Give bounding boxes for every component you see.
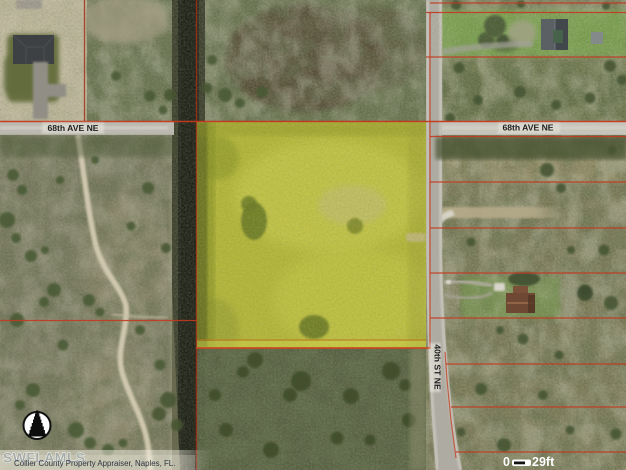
svg-text:40th ST NE: 40th ST NE	[433, 344, 443, 390]
svg-text:Collier County Property Apprai: Collier County Property Appraiser, Naple…	[14, 459, 175, 468]
svg-text:68th AVE NE: 68th AVE NE	[502, 123, 553, 133]
svg-text:29ft: 29ft	[532, 455, 555, 469]
svg-text:68th AVE NE: 68th AVE NE	[47, 123, 98, 133]
svg-text:0: 0	[503, 455, 510, 469]
